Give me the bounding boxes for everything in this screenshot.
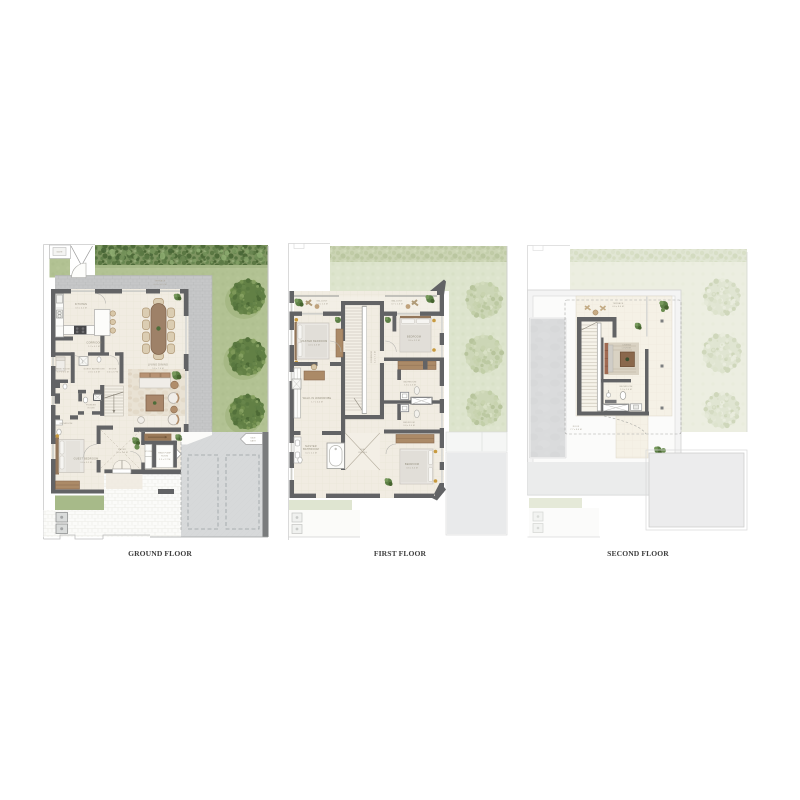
svg-text:ROOF: ROOF xyxy=(573,426,580,428)
svg-text:1.2 x 7.2 M: 1.2 x 7.2 M xyxy=(374,351,376,363)
svg-text:MAID ROOM: MAID ROOM xyxy=(56,368,69,371)
svg-text:GATE: GATE xyxy=(250,439,256,442)
svg-text:3.5 x 4.2 M: 3.5 x 4.2 M xyxy=(75,307,87,309)
svg-text:BALCONY: BALCONY xyxy=(392,300,403,303)
svg-text:BATHROOM: BATHROOM xyxy=(303,448,319,451)
svg-text:CORRIDOR: CORRIDOR xyxy=(86,342,101,345)
svg-text:4.6 x 8.0 M: 4.6 x 8.0 M xyxy=(612,306,624,308)
svg-text:5.0 x 1.6 M: 5.0 x 1.6 M xyxy=(316,304,328,306)
svg-text:WALK-IN WARDROBE: WALK-IN WARDROBE xyxy=(303,397,332,400)
svg-text:MASTER BEDROOM: MASTER BEDROOM xyxy=(301,340,328,343)
svg-text:3.7 x 1.6 M: 3.7 x 1.6 M xyxy=(391,304,403,306)
svg-text:1.6 x 2.3 M: 1.6 x 2.3 M xyxy=(404,385,416,387)
svg-text:POWDER: POWDER xyxy=(86,405,96,407)
svg-text:ROOM: ROOM xyxy=(88,408,95,410)
svg-text:1.5 x 2.7 M: 1.5 x 2.7 M xyxy=(159,459,171,461)
svg-text:BALCONY: BALCONY xyxy=(317,300,328,303)
svg-text:GUEST BEDROOM: GUEST BEDROOM xyxy=(74,458,99,461)
svg-text:FOYER: FOYER xyxy=(118,449,126,451)
svg-text:BATHROOM: BATHROOM xyxy=(404,381,417,384)
svg-text:ROOM: ROOM xyxy=(161,456,168,458)
svg-text:7.7 x 8.6 M: 7.7 x 8.6 M xyxy=(570,429,582,431)
svg-text:LIVING DINING: LIVING DINING xyxy=(148,364,168,367)
svg-text:6.0 x 10.5 M: 6.0 x 10.5 M xyxy=(154,284,167,286)
svg-text:HIGH: HIGH xyxy=(360,449,366,451)
svg-text:2.0 x 2.0 M: 2.0 x 2.0 M xyxy=(116,452,128,454)
svg-text:3.6 x 3.2 M: 3.6 x 3.2 M xyxy=(80,462,92,464)
svg-text:CINEMA: CINEMA xyxy=(622,344,631,347)
svg-text:CEILING: CEILING xyxy=(358,452,367,454)
svg-text:SIDE: SIDE xyxy=(250,437,256,439)
svg-text:1.7 x 2.1 M: 1.7 x 2.1 M xyxy=(57,372,69,374)
svg-text:LOUNGE: LOUNGE xyxy=(622,348,632,350)
svg-text:1.9 x 2.6 M: 1.9 x 2.6 M xyxy=(620,389,632,391)
svg-text:TERRACE: TERRACE xyxy=(155,280,166,283)
svg-text:3.6 x 3.2 M: 3.6 x 3.2 M xyxy=(408,340,420,342)
svg-text:FIRST FLOOR: FIRST FLOOR xyxy=(374,549,427,558)
svg-text:1.7 x 4.0 M: 1.7 x 4.0 M xyxy=(311,402,323,404)
svg-text:GATE: GATE xyxy=(57,251,63,254)
svg-text:3.6 x 3.4 M: 3.6 x 3.4 M xyxy=(406,468,418,470)
svg-text:STORE: STORE xyxy=(109,369,117,371)
svg-text:3.6 x 3.4 M: 3.6 x 3.4 M xyxy=(403,425,415,427)
svg-text:STORE: STORE xyxy=(145,451,153,453)
svg-text:3.2 x 2.2 M: 3.2 x 2.2 M xyxy=(305,452,317,454)
svg-text:4.0 x 4.3 M: 4.0 x 4.3 M xyxy=(308,345,320,347)
svg-text:KITCHEN: KITCHEN xyxy=(75,303,87,306)
svg-text:BEDROOM: BEDROOM xyxy=(407,336,421,339)
svg-text:CORRIDOR: CORRIDOR xyxy=(371,351,373,364)
svg-text:BATHROOM: BATHROOM xyxy=(620,385,633,388)
svg-text:TERRACE: TERRACE xyxy=(613,302,624,305)
svg-text:1.6 x 2.7 M: 1.6 x 2.7 M xyxy=(107,372,119,374)
svg-text:1.2 x 4.1 M: 1.2 x 4.1 M xyxy=(88,346,100,348)
svg-text:GROUND FLOOR: GROUND FLOOR xyxy=(128,549,192,558)
svg-text:GUEST BATHROOM: GUEST BATHROOM xyxy=(84,368,105,371)
svg-text:BEDROOM: BEDROOM xyxy=(403,422,415,424)
svg-text:BEDROOM: BEDROOM xyxy=(405,463,419,466)
svg-text:BATHROOM: BATHROOM xyxy=(60,422,73,425)
svg-text:HEAT PUMP: HEAT PUMP xyxy=(158,452,171,455)
svg-text:SECOND FLOOR: SECOND FLOOR xyxy=(607,549,669,558)
svg-text:2.0 x 2.6 M: 2.0 x 2.6 M xyxy=(88,372,100,374)
